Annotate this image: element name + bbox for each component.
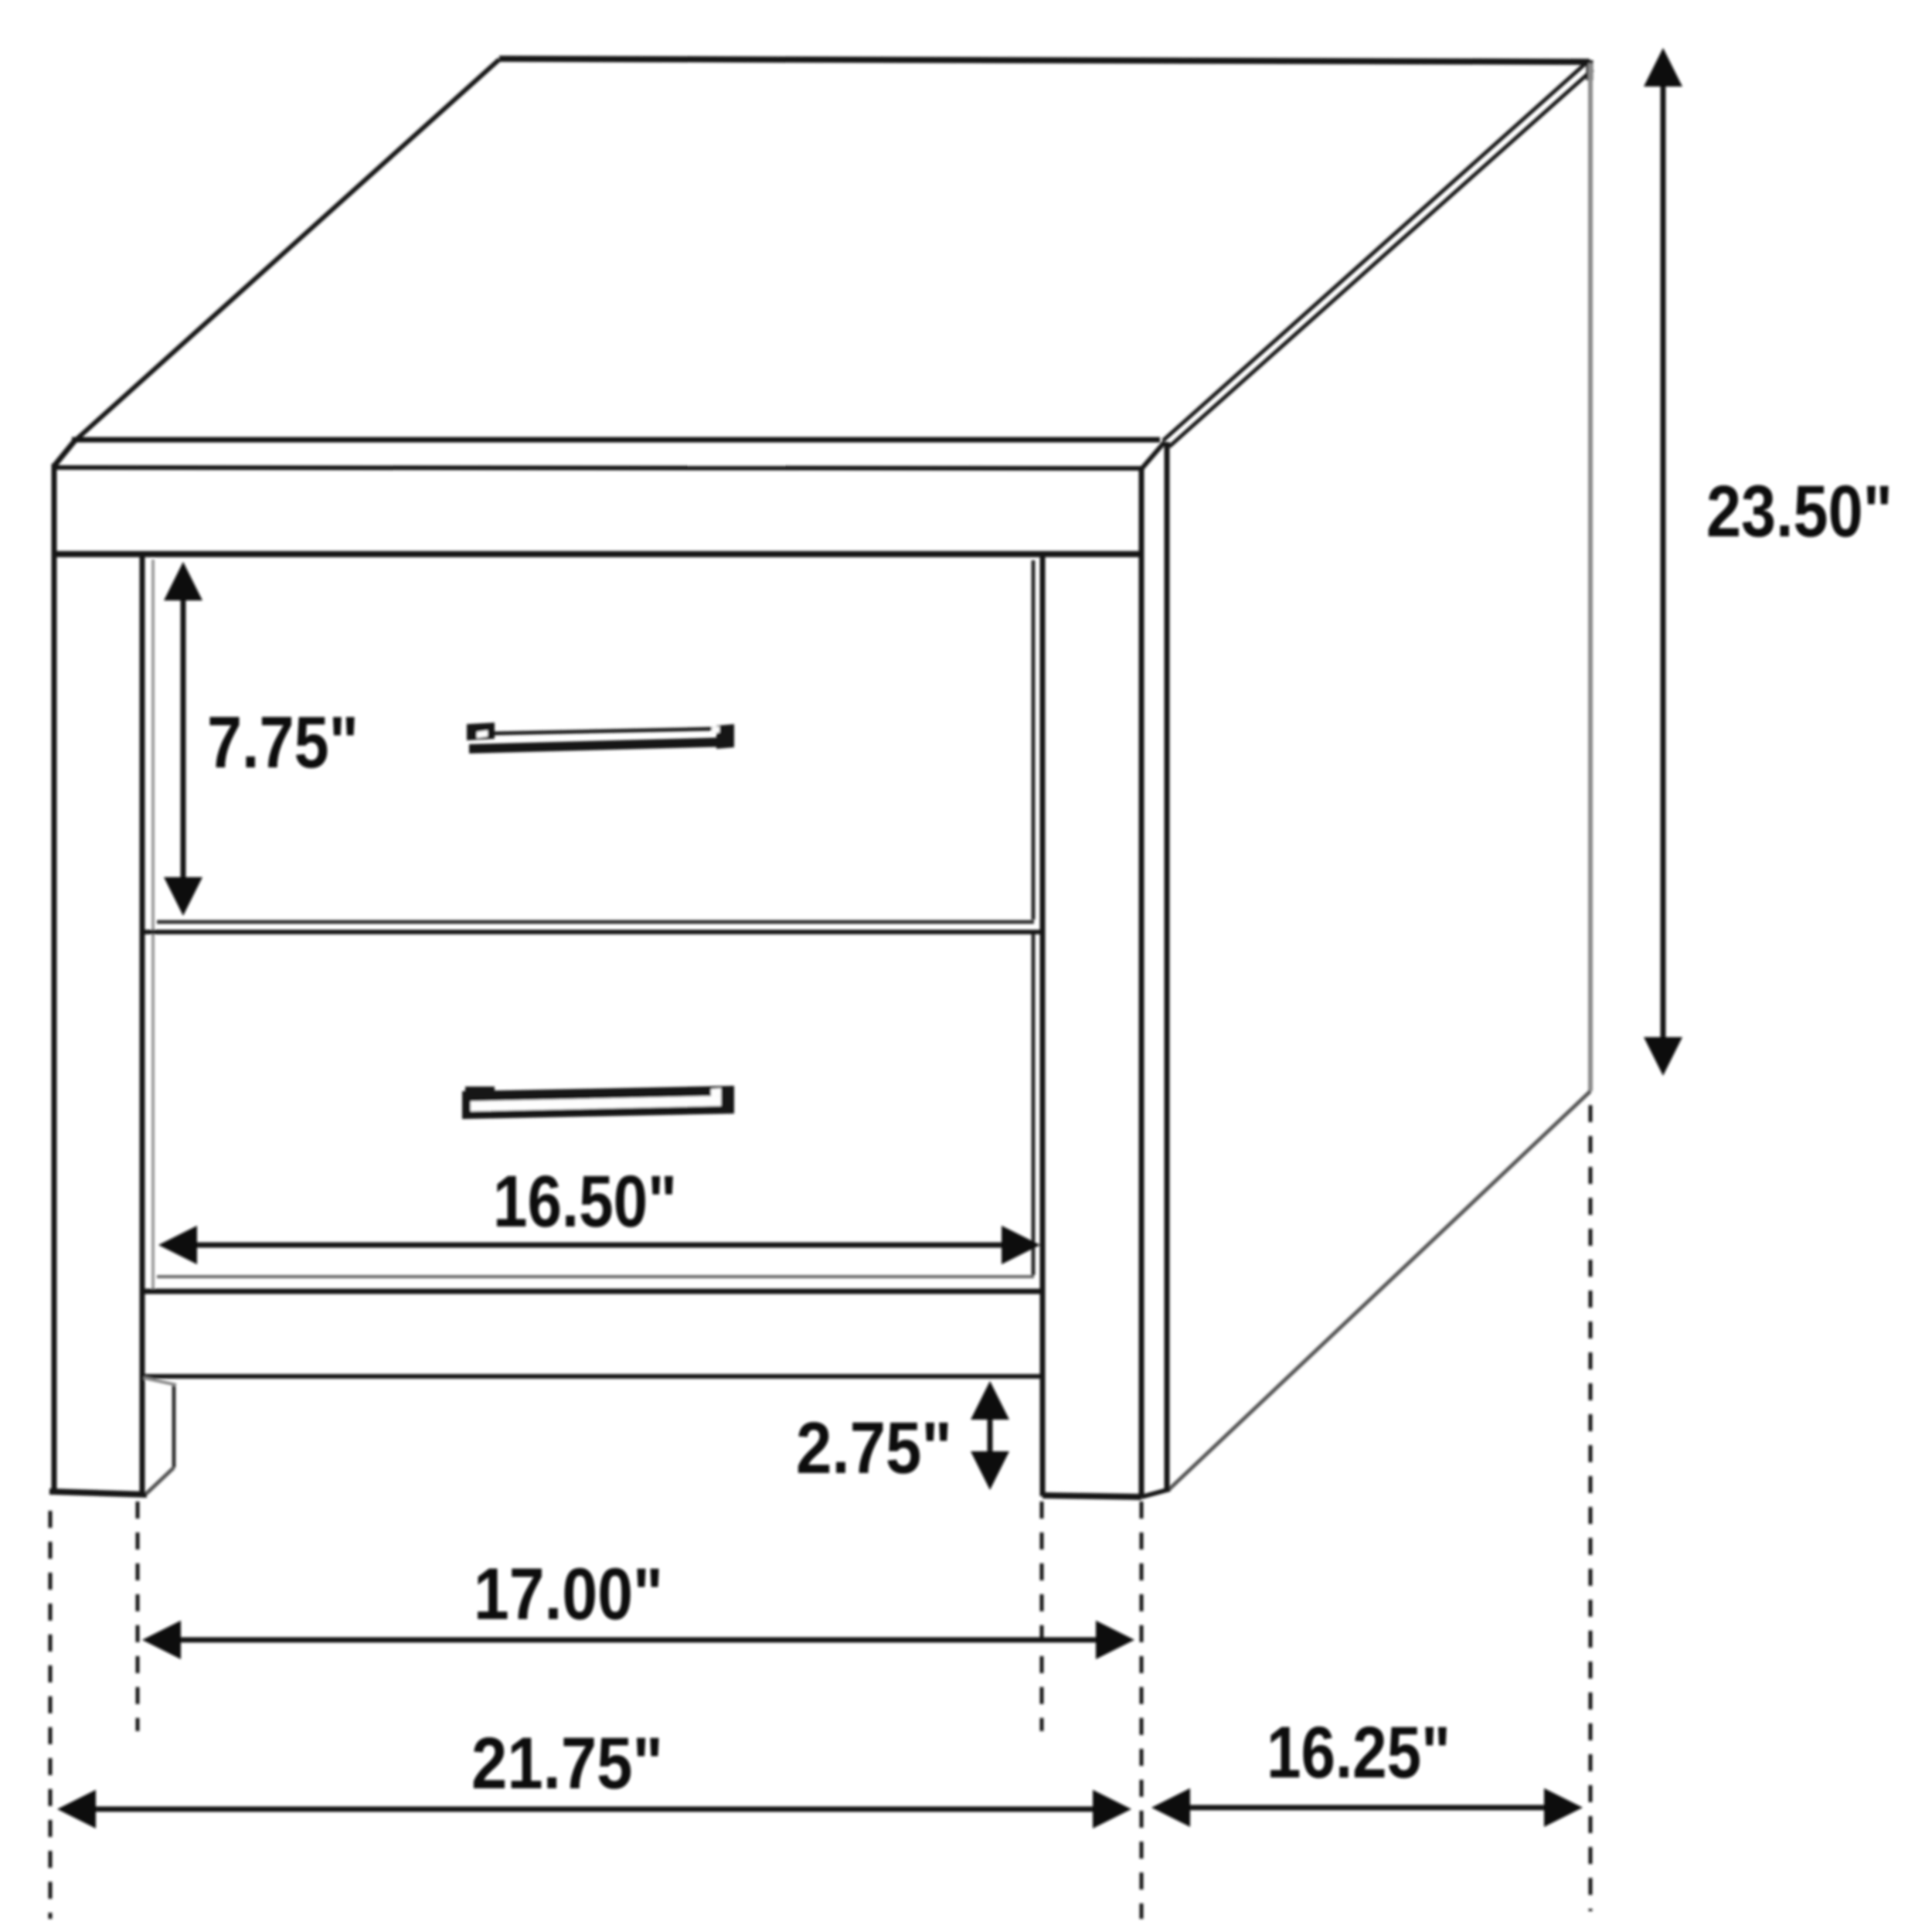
svg-text:16.50": 16.50": [493, 1161, 677, 1243]
svg-text:17.00": 17.00": [474, 1553, 663, 1635]
svg-text:16.25": 16.25": [1267, 1712, 1451, 1794]
svg-text:2.75": 2.75": [796, 1407, 952, 1489]
svg-text:23.50": 23.50": [1706, 471, 1893, 553]
svg-text:7.75": 7.75": [207, 702, 359, 784]
svg-text:21.75": 21.75": [471, 1723, 663, 1804]
